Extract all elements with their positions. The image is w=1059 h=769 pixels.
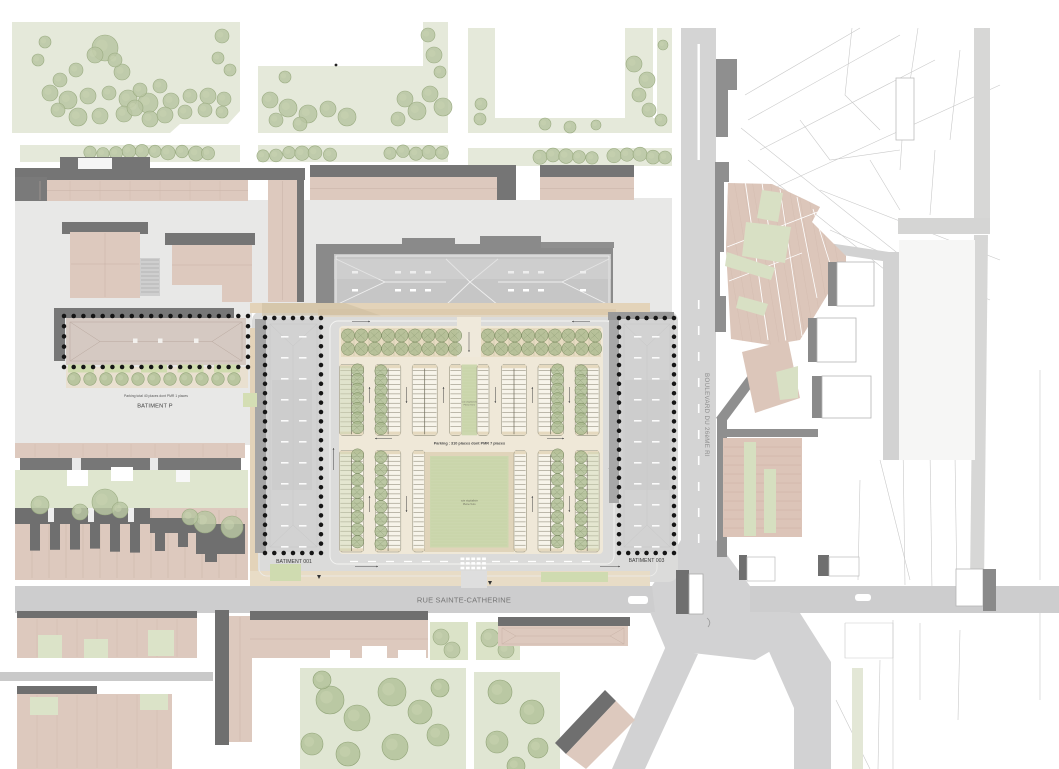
svg-text:voie végétalisée: voie végétalisée [461, 500, 479, 503]
svg-text:Parking total 40 places dont P: Parking total 40 places dont PMR 1 place… [124, 394, 188, 398]
svg-text:voie végétalisée: voie végétalisée [462, 401, 478, 404]
svg-text:BOULEVARD DU 26èME RI: BOULEVARD DU 26èME RI [703, 373, 710, 457]
svg-text:BATIMENT 001: BATIMENT 001 [276, 559, 312, 565]
svg-text:BATIMENT P: BATIMENT P [137, 404, 173, 410]
svg-text:RUE SAINTE-CATHERINE: RUE SAINTE-CATHERINE [417, 596, 511, 605]
svg-text:Parking : 310 places dont PMR: Parking : 310 places dont PMR 7 places [434, 442, 505, 446]
svg-text:Pleine Terre: Pleine Terre [464, 404, 476, 407]
svg-text:BATIMENT 003: BATIMENT 003 [629, 558, 665, 564]
svg-text:Pleine Terre: Pleine Terre [463, 503, 476, 506]
